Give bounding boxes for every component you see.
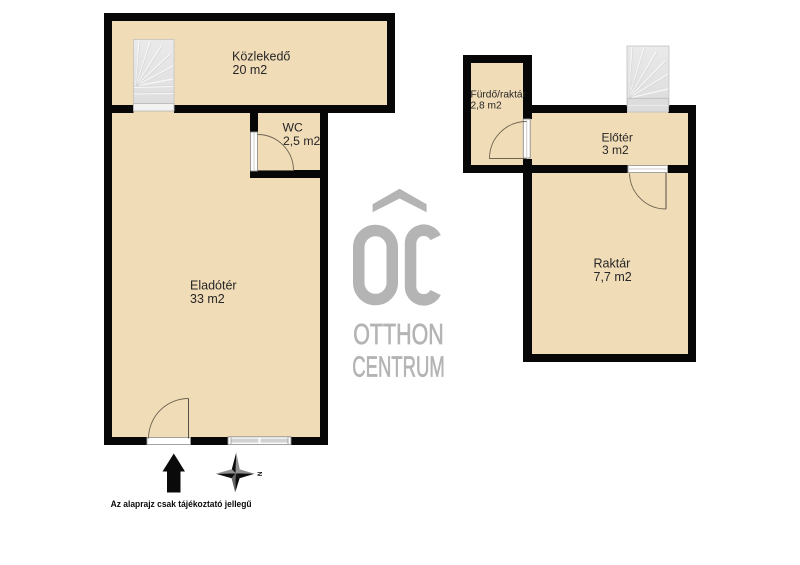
svg-text:33 m2: 33 m2 xyxy=(190,292,225,306)
svg-text:Fürdő/raktár: Fürdő/raktár xyxy=(471,90,527,101)
svg-text:WC: WC xyxy=(283,121,304,135)
svg-text:2,8 m2: 2,8 m2 xyxy=(471,101,502,112)
svg-text:N: N xyxy=(255,472,262,477)
svg-text:OTTHON: OTTHON xyxy=(353,319,444,351)
svg-text:20 m2: 20 m2 xyxy=(233,63,268,77)
svg-text:Az alaprajz csak tájékoztató j: Az alaprajz csak tájékoztató jellegű xyxy=(111,499,252,509)
svg-text:7,7 m2: 7,7 m2 xyxy=(594,270,632,284)
svg-text:2,5 m2: 2,5 m2 xyxy=(283,134,320,148)
svg-text:Raktár: Raktár xyxy=(594,257,631,271)
svg-text:CENTRUM: CENTRUM xyxy=(352,351,445,383)
svg-text:Közlekedő: Közlekedő xyxy=(232,50,290,64)
svg-text:Eladótér: Eladótér xyxy=(190,279,237,293)
svg-text:3 m2: 3 m2 xyxy=(602,143,629,157)
